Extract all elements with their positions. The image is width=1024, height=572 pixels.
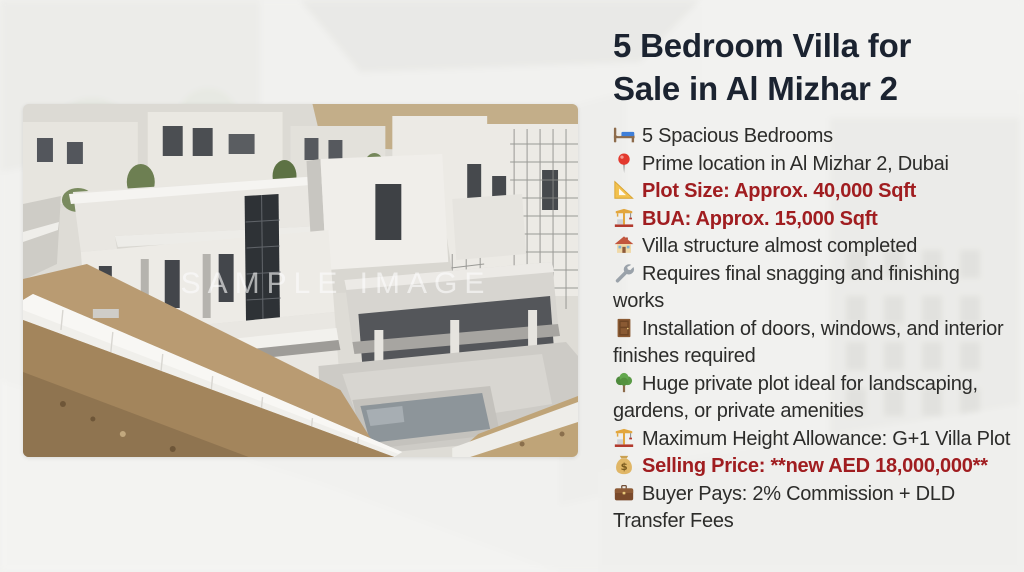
- detail-item: Villa structure almost completed: [613, 233, 1015, 261]
- pin-icon: [613, 152, 635, 174]
- money-bag-icon: $: [613, 454, 635, 476]
- detail-text: Plot Size: Approx. 40,000 Sqft: [642, 180, 916, 202]
- detail-item: Prime location in Al Mizhar 2, Dubai: [613, 151, 1015, 179]
- briefcase-icon: [613, 482, 635, 504]
- construction-crane-icon: [613, 207, 635, 229]
- svg-text:$: $: [621, 462, 628, 473]
- construction-crane-icon: [613, 427, 635, 449]
- detail-item: BUA: Approx. 15,000 Sqft: [613, 206, 1015, 234]
- listing-details-panel: 5 Bedroom Villa for Sale in Al Mizhar 2 …: [613, 24, 1015, 536]
- detail-item: Plot Size: Approx. 40,000 Sqft: [613, 178, 1015, 206]
- detail-item: Huge private plot ideal for landscaping,…: [613, 371, 1015, 426]
- house-icon: [613, 234, 635, 256]
- details-list: 5 Spacious BedroomsPrime location in Al …: [613, 123, 1015, 536]
- bed-icon: [613, 124, 635, 146]
- detail-item: 5 Spacious Bedrooms: [613, 123, 1015, 151]
- detail-item: Installation of doors, windows, and inte…: [613, 316, 1015, 371]
- triangular-ruler-icon: [613, 179, 635, 201]
- detail-text: Villa structure almost completed: [642, 235, 917, 257]
- detail-text: 5 Spacious Bedrooms: [642, 125, 833, 147]
- detail-text: Prime location in Al Mizhar 2, Dubai: [642, 153, 949, 175]
- sample-image-watermark: SAMPLE IMAGE: [181, 267, 492, 301]
- detail-item: Maximum Height Allowance: G+1 Villa Plot: [613, 426, 1015, 454]
- detail-text: Installation of doors, windows, and inte…: [613, 318, 1003, 368]
- detail-text: Huge private plot ideal for landscaping,…: [613, 373, 978, 423]
- detail-item: $Selling Price: **new AED 18,000,000**: [613, 453, 1015, 481]
- door-icon: [613, 317, 635, 339]
- detail-text: Buyer Pays: 2% Commission + DLD Transfer…: [613, 483, 955, 533]
- detail-item: Buyer Pays: 2% Commission + DLD Transfer…: [613, 481, 1015, 536]
- detail-text: Selling Price: **new AED 18,000,000**: [642, 455, 988, 477]
- tree-icon: [613, 372, 635, 394]
- wrench-icon: [613, 262, 635, 284]
- detail-text: Maximum Height Allowance: G+1 Villa Plot: [642, 428, 1010, 450]
- villa-photo: SAMPLE IMAGE: [23, 104, 578, 457]
- detail-text: BUA: Approx. 15,000 Sqft: [642, 208, 878, 230]
- listing-flyer: SAMPLE IMAGE 5 Bedroom Villa for Sale in…: [0, 0, 1024, 572]
- page-title: 5 Bedroom Villa for Sale in Al Mizhar 2: [613, 24, 958, 110]
- detail-item: Requires final snagging and finishing wo…: [613, 261, 1015, 316]
- detail-text: Requires final snagging and finishing wo…: [613, 263, 960, 313]
